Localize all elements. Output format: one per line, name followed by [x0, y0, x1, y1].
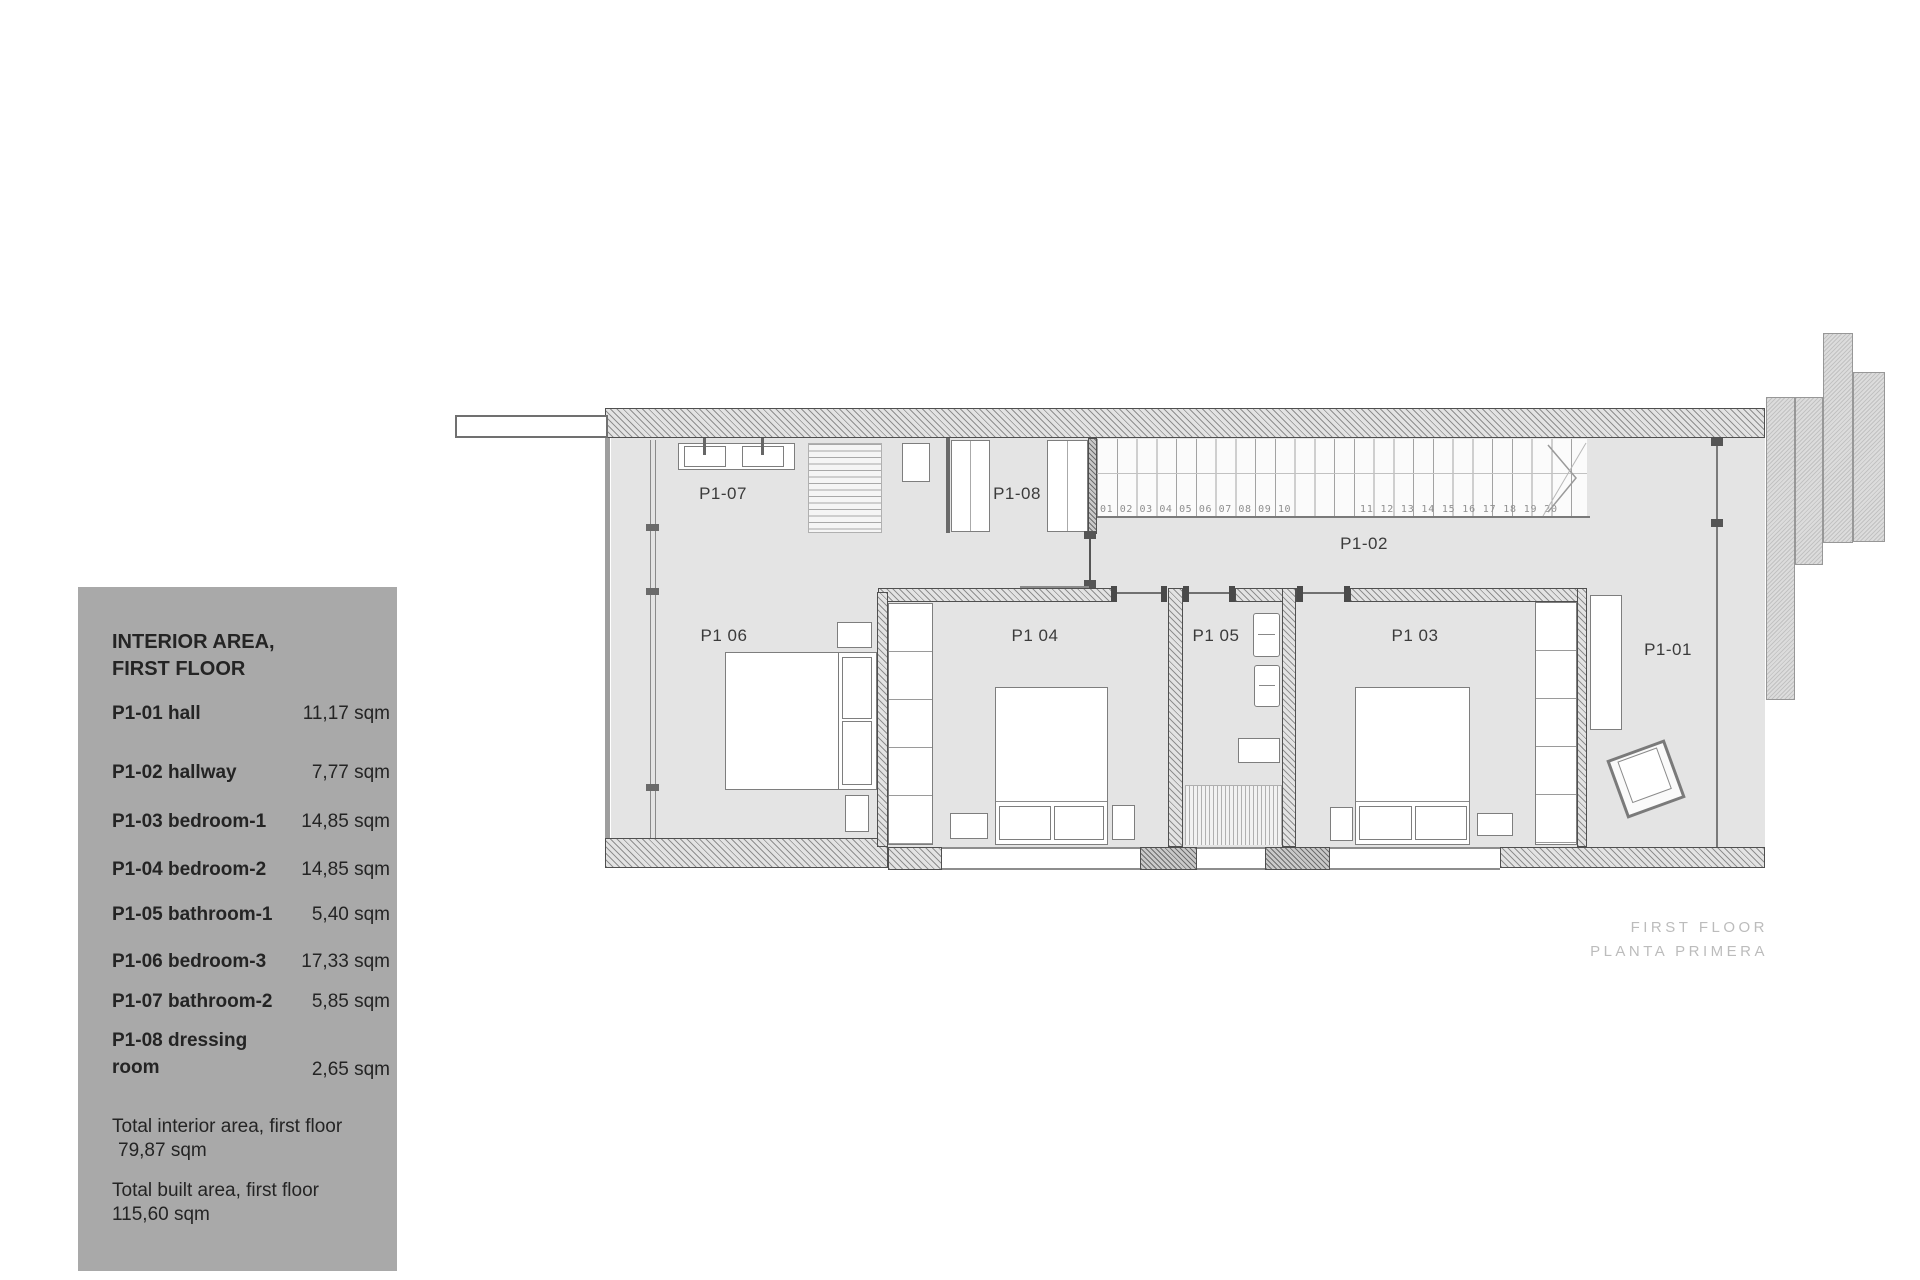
pillow: [999, 806, 1051, 840]
area-row-value: 14,85 sqm: [301, 859, 390, 881]
floor-plan-sheet: 01 02 03 04 05 06 07 08 09 10 11 12 13 1…: [0, 0, 1920, 1280]
stair-edge-line: [1097, 516, 1590, 518]
nightstand: [1112, 805, 1135, 840]
glazing-left: [650, 440, 656, 838]
panel-title-line2: FIRST FLOOR: [112, 656, 275, 683]
door-hardware: [1344, 586, 1350, 602]
bed-blanket-line: [1356, 801, 1469, 802]
wall-bottom-stub: [888, 847, 942, 870]
pillow: [842, 657, 872, 719]
stair-numbers-left: 01 02 03 04 05 06 07 08 09 10: [1100, 504, 1291, 515]
bidet-line: [1259, 685, 1275, 686]
room-label-bedroom3: P1 06: [701, 626, 748, 646]
area-row-label: P1-03 bedroom-1: [112, 811, 266, 833]
area-row-value: 5,85 sqm: [312, 991, 390, 1013]
door-hardware: [1229, 586, 1235, 602]
exterior-slab: [1795, 397, 1823, 565]
mullion-tick: [646, 784, 659, 791]
area-row-value: 17,33 sqm: [301, 951, 390, 973]
dressing-room-wall-left: [946, 438, 950, 533]
wall-bathroom1-bedroom1: [1282, 588, 1296, 847]
total-value: 115,60 sqm: [112, 1203, 390, 1227]
total-label: Total interior area, first floor: [112, 1115, 390, 1139]
window-bathroom-1: [1197, 847, 1265, 870]
area-row-label: P1-05 bathroom-1: [112, 904, 272, 926]
total-built-area: Total built area, first floor 115,60 sqm: [112, 1179, 390, 1227]
wall-bedroom2-left: [877, 592, 888, 847]
area-row-label: P1-07 bathroom-2: [112, 991, 272, 1013]
interior-area-panel: INTERIOR AREA, FIRST FLOOR P1-01 hall 11…: [78, 587, 397, 1271]
nightstand: [837, 622, 872, 648]
total-interior-area: Total interior area, first floor 79,87 s…: [112, 1115, 390, 1163]
area-row-dressing: P1-08 dressing room 2,65 sqm: [112, 1027, 390, 1081]
mullion-tick: [646, 588, 659, 595]
armchair-seat: [1617, 747, 1672, 803]
bidet: [1254, 665, 1280, 707]
stair-numbers-right: 11 12 13 14 15 16 17 18 19 20: [1360, 504, 1558, 515]
nightstand: [950, 813, 988, 839]
door-hardware: [1111, 586, 1117, 602]
room-label-bedroom2: P1 04: [1012, 626, 1059, 646]
cabinet: [902, 443, 930, 482]
area-row-label: P1-01 hall: [112, 703, 201, 725]
shower-bathroom2: [808, 443, 882, 533]
area-row-label: P1-02 hallway: [112, 762, 237, 784]
door-hardware: [1161, 586, 1167, 602]
door-hardware: [1183, 586, 1189, 602]
toilet: [1253, 613, 1280, 657]
area-row-value: 11,17 sqm: [303, 703, 390, 725]
nightstand: [1330, 807, 1353, 841]
room-label-dressing: P1-08: [993, 484, 1041, 504]
wall-top: [605, 408, 1765, 438]
panel-title: INTERIOR AREA, FIRST FLOOR: [112, 629, 275, 683]
room-label-hall: P1-01: [1644, 640, 1692, 660]
wall-bottom-left: [605, 838, 888, 868]
wardrobe-divider: [1067, 441, 1068, 531]
wall-bottom-stub: [1265, 847, 1330, 870]
exterior-slab: [1766, 397, 1795, 700]
total-value: 79,87 sqm: [112, 1139, 390, 1163]
caption-spanish: PLANTA PRIMERA: [1400, 940, 1768, 964]
area-row-label: P1-06 bedroom-3: [112, 951, 266, 973]
area-row-value: 7,77 sqm: [312, 762, 390, 784]
bed-headboard-line: [838, 653, 839, 789]
wardrobe-bedroom2: [888, 603, 933, 845]
room-label-bedroom1: P1 03: [1392, 626, 1439, 646]
sheet-caption: FIRST FLOOR PLANTA PRIMERA: [1400, 916, 1768, 964]
door-hardware: [1297, 586, 1303, 602]
door-hardware: [1084, 531, 1096, 539]
area-row-bedroom3: P1-06 bedroom-3 17,33 sqm: [112, 951, 390, 973]
wardrobe-divider: [970, 441, 971, 531]
area-row-value: 5,40 sqm: [312, 904, 390, 926]
exterior-slab: [1823, 333, 1853, 543]
door-leaf: [1303, 592, 1344, 594]
balcony-beam: [455, 415, 608, 438]
vanity: [1238, 738, 1280, 763]
shower-bathroom1: [1185, 785, 1282, 845]
room-label-bathroom2: P1-07: [699, 484, 747, 504]
stairs-direction-arrow: [1540, 440, 1590, 520]
room-label-hallway: P1-02: [1340, 534, 1388, 554]
pillow: [842, 721, 872, 785]
wall-bottom-stub: [1140, 847, 1197, 870]
total-label: Total built area, first floor: [112, 1179, 390, 1203]
wardrobe-bedroom1: [1535, 602, 1577, 845]
wall-bedroom1-top: [1350, 588, 1587, 602]
pillow: [1359, 806, 1412, 840]
area-row-value: 14,85 sqm: [301, 811, 390, 833]
nightstand: [1477, 813, 1513, 836]
toilet-line: [1258, 634, 1275, 635]
area-row-bedroom1: P1-03 bedroom-1 14,85 sqm: [112, 811, 390, 833]
wall-bedroom2-top: [878, 588, 1117, 602]
mullion-tick: [646, 524, 659, 531]
area-row-label: P1-04 bedroom-2: [112, 859, 266, 881]
exterior-slab: [1853, 372, 1885, 542]
stair-landing-line: [1097, 473, 1587, 474]
area-row-hall: P1-01 hall 11,17 sqm: [112, 703, 390, 725]
door-hardware: [1711, 438, 1723, 446]
area-row-bedroom2: P1-04 bedroom-2 14,85 sqm: [112, 859, 390, 881]
wall-left: [605, 438, 610, 838]
dressing-room-wall-right: [1088, 438, 1097, 534]
area-row-label: P1-08 dressing room: [112, 1027, 287, 1081]
caption-english: FIRST FLOOR: [1400, 916, 1768, 940]
door-leaf: [1117, 592, 1167, 594]
door-leaf: [1189, 592, 1229, 594]
sideboard-hall: [1590, 595, 1622, 730]
wall-bedroom1-right: [1577, 588, 1587, 847]
tap: [703, 438, 706, 455]
window-bedroom-1: [1330, 847, 1500, 870]
panel-title-line1: INTERIOR AREA,: [112, 629, 275, 656]
wall-bedroom2-bathroom1: [1168, 588, 1183, 847]
window-bedroom-2: [942, 847, 1140, 870]
area-row-bathroom2: P1-07 bathroom-2 5,85 sqm: [112, 991, 390, 1013]
nightstand: [845, 795, 869, 832]
wall-bottom-right: [1500, 847, 1765, 868]
area-row-bathroom1: P1-05 bathroom-1 5,40 sqm: [112, 904, 390, 926]
glazing-right: [1716, 440, 1718, 847]
bed-blanket-line: [996, 801, 1107, 802]
pillow: [1415, 806, 1467, 840]
tap: [761, 438, 764, 455]
pillow: [1054, 806, 1104, 840]
area-row-hallway: P1-02 hallway 7,77 sqm: [112, 762, 390, 784]
door-hardware: [1711, 519, 1723, 527]
room-label-bathroom1: P1 05: [1193, 626, 1240, 646]
area-row-value: 2,65 sqm: [312, 1059, 390, 1081]
